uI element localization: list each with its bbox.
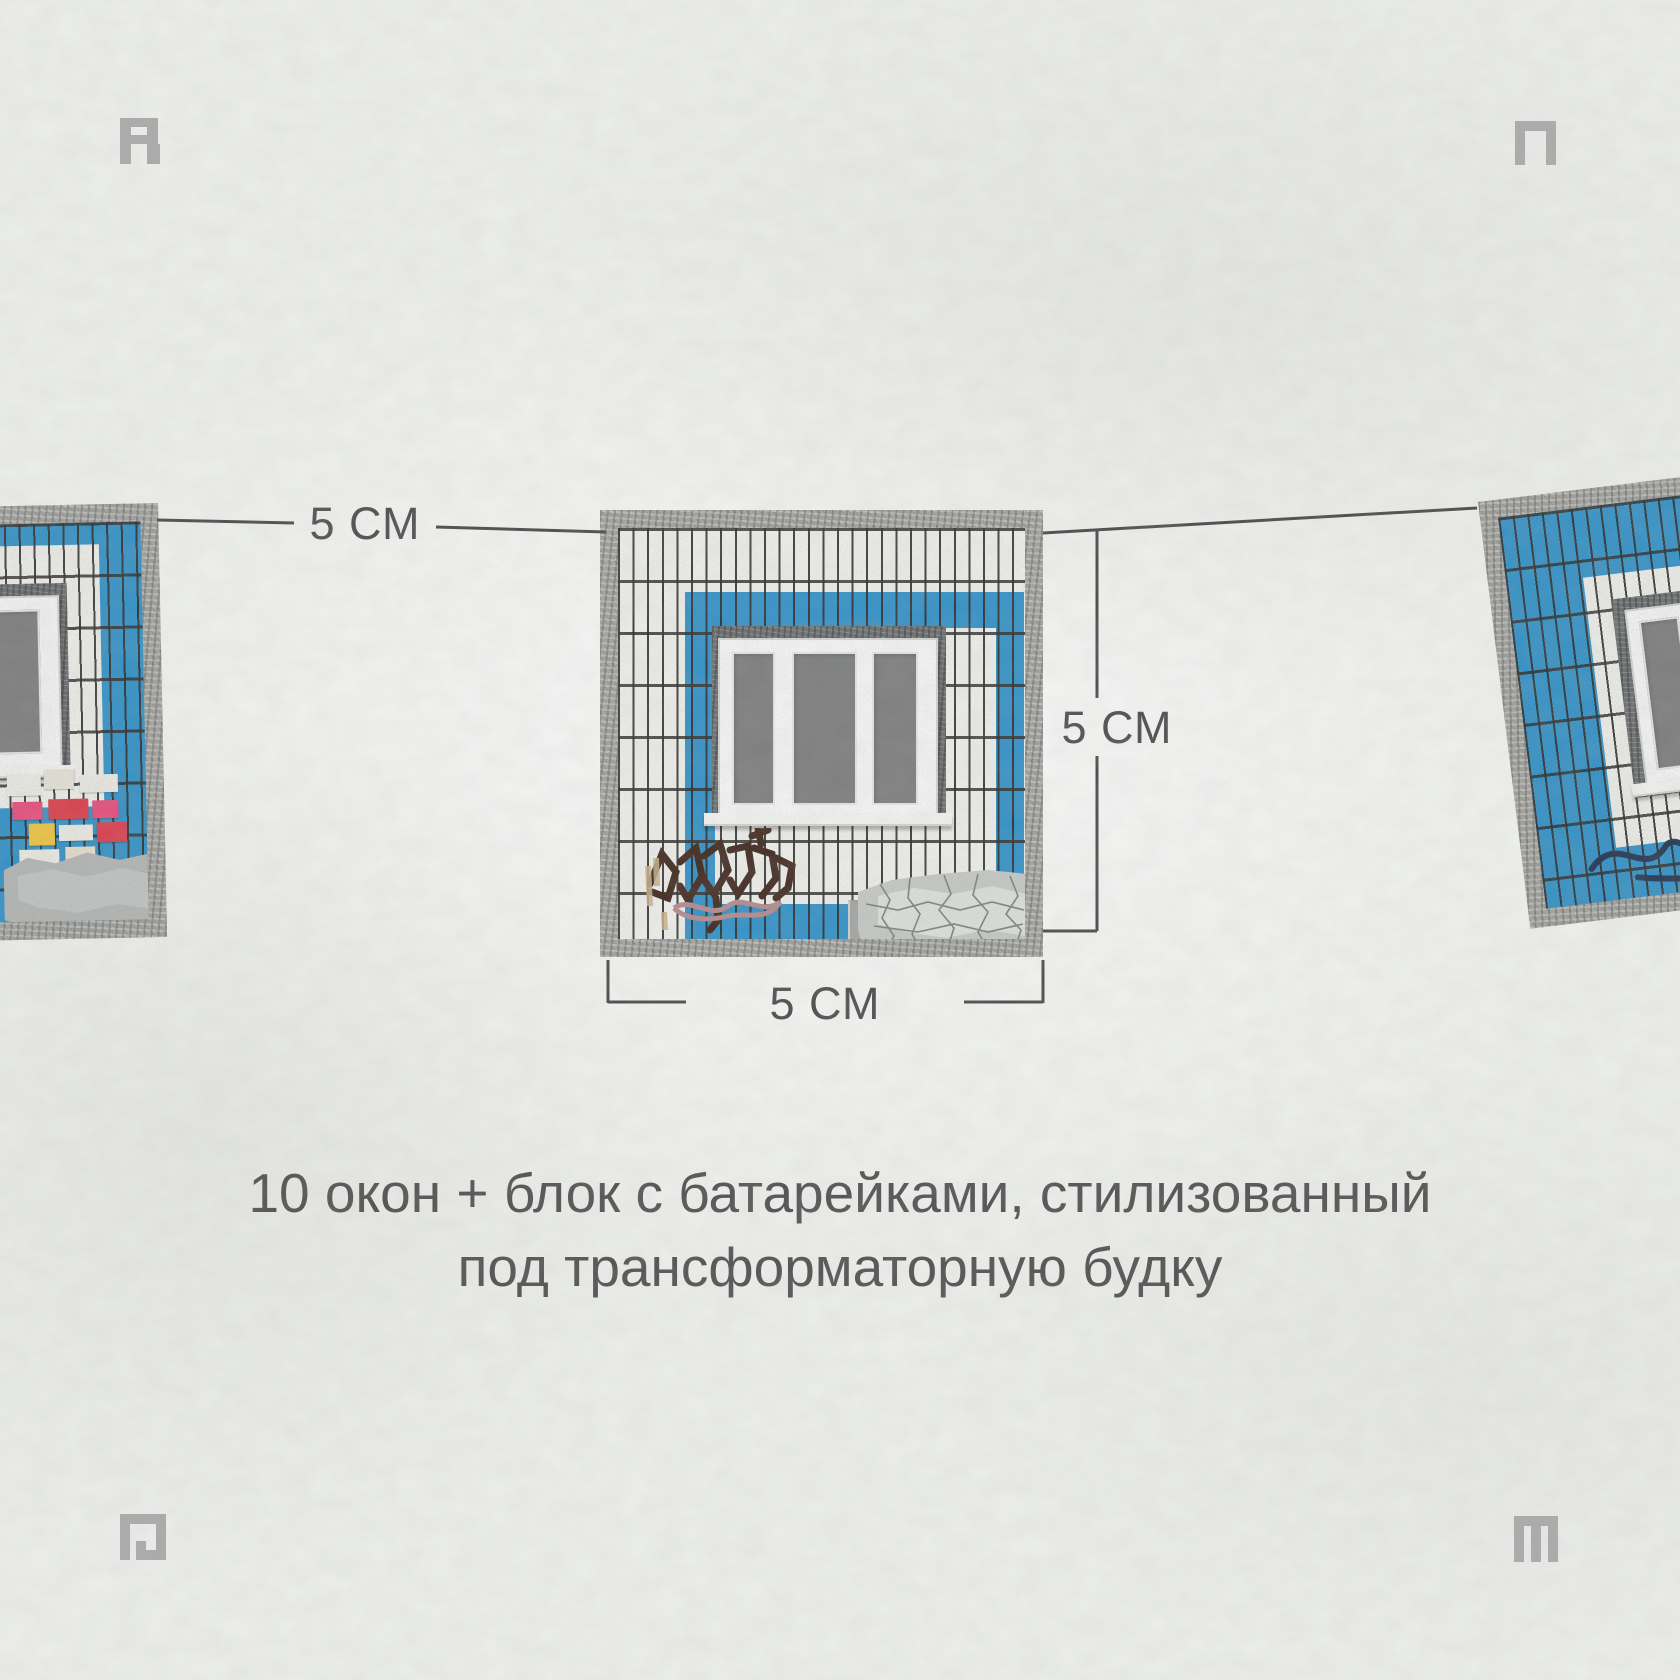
dimension-leader-right bbox=[1043, 508, 1477, 533]
dimension-label-top: 5 СМ bbox=[280, 498, 450, 550]
corner-mark-bottom-right bbox=[1514, 1516, 1558, 1562]
dimension-label-right: 5 СМ bbox=[1032, 702, 1202, 754]
caption-line-2: под трансформаторную будку bbox=[0, 1230, 1680, 1304]
corner-mark-top-right bbox=[1515, 121, 1557, 165]
corner-mark-bottom-left bbox=[120, 1514, 166, 1560]
corner-mark-top-left bbox=[120, 118, 166, 164]
dimension-line-top bbox=[157, 520, 294, 523]
dimension-lines bbox=[0, 0, 1680, 1680]
caption: 10 окон + блок с батарейками, стилизован… bbox=[0, 1156, 1680, 1304]
caption-line-1: 10 окон + блок с батарейками, стилизован… bbox=[0, 1156, 1680, 1230]
dimension-label-bottom: 5 СМ bbox=[740, 978, 910, 1030]
poster-canvas: 5 СМ 5 СМ 5 СМ 10 окон + блок с батарейк… bbox=[0, 0, 1680, 1680]
